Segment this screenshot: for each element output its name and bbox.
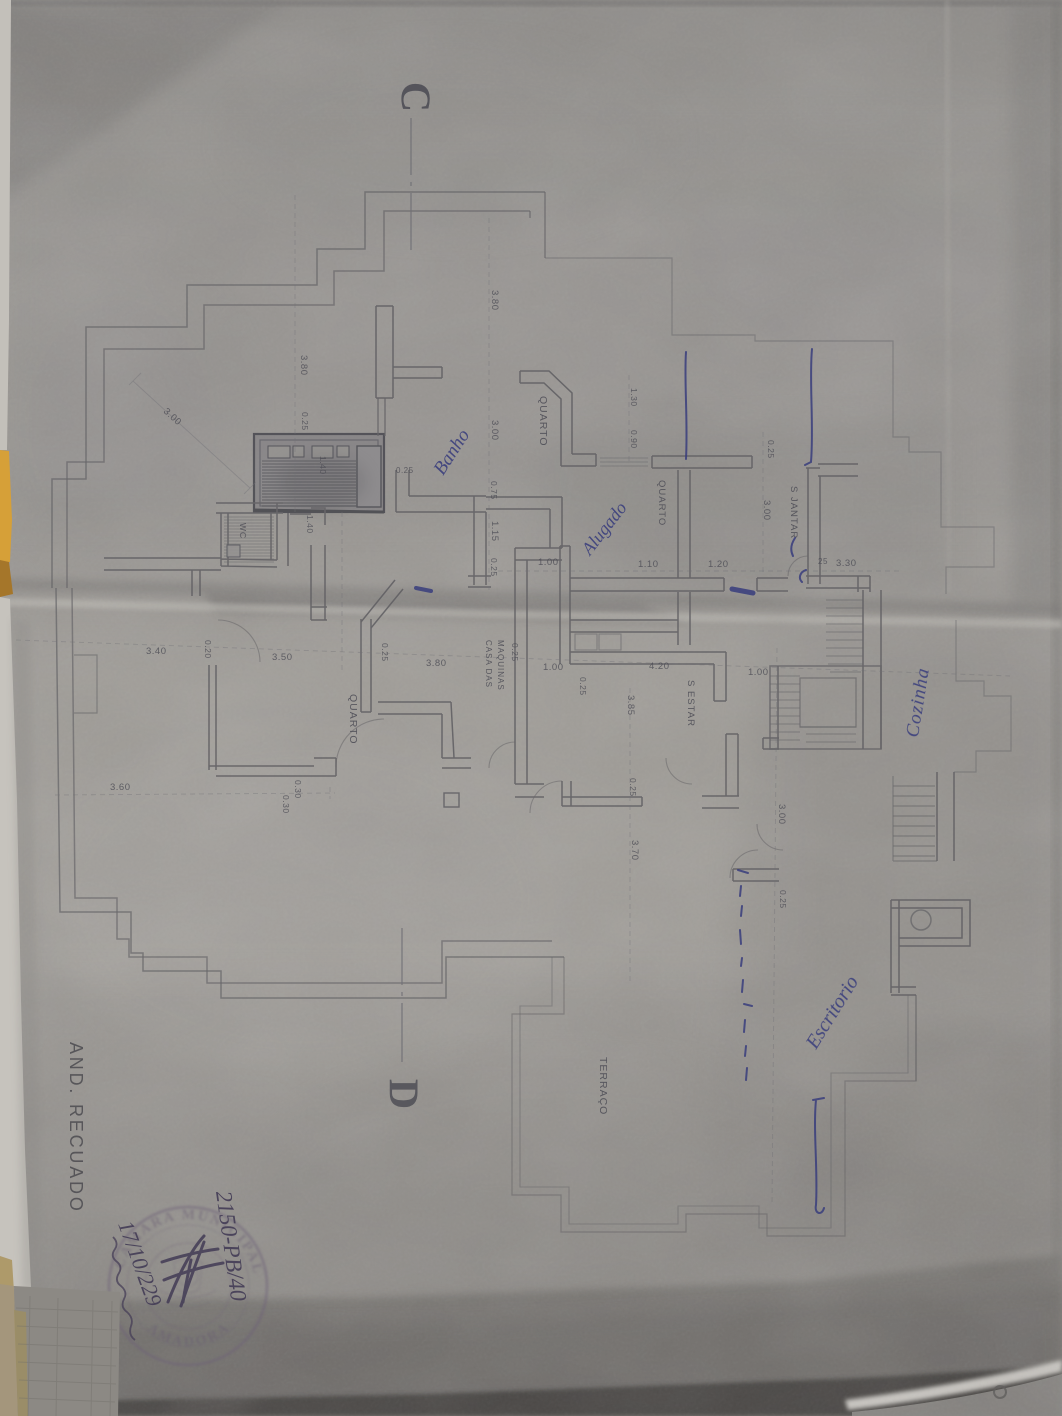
svg-text:0.25: 0.25 bbox=[510, 643, 520, 662]
svg-text:3.60: 3.60 bbox=[110, 782, 131, 793]
svg-text:QUARTO: QUARTO bbox=[537, 396, 549, 447]
svg-text:0.30: 0.30 bbox=[293, 780, 303, 799]
svg-text:QUARTO: QUARTO bbox=[656, 480, 667, 526]
svg-text:0.20: 0.20 bbox=[203, 640, 213, 659]
svg-text:QUARTO: QUARTO bbox=[347, 694, 359, 745]
svg-text:1.00: 1.00 bbox=[748, 667, 769, 678]
svg-text:0.30: 0.30 bbox=[281, 795, 291, 814]
svg-text:MAQUINAS: MAQUINAS bbox=[496, 640, 505, 691]
svg-text:3.00: 3.00 bbox=[761, 500, 772, 521]
svg-text:1.10: 1.10 bbox=[638, 559, 659, 570]
svg-text:C: C bbox=[391, 82, 437, 112]
svg-text:1.30: 1.30 bbox=[629, 388, 639, 407]
svg-text:1.00: 1.00 bbox=[538, 557, 559, 568]
svg-text:1.15: 1.15 bbox=[489, 521, 500, 542]
svg-text:3.50: 3.50 bbox=[272, 652, 293, 663]
svg-text:S ESTAR: S ESTAR bbox=[685, 680, 696, 727]
svg-text:4.20: 4.20 bbox=[649, 661, 670, 672]
svg-text:CASA DAS: CASA DAS bbox=[484, 640, 493, 688]
svg-text:D: D bbox=[379, 1079, 425, 1109]
svg-text:3.00: 3.00 bbox=[776, 804, 787, 825]
svg-text:3.80: 3.80 bbox=[298, 355, 309, 376]
svg-text:3.85: 3.85 bbox=[625, 695, 636, 716]
svg-text:0.25: 0.25 bbox=[578, 677, 588, 696]
svg-text:1.20: 1.20 bbox=[708, 559, 729, 570]
svg-text:3.40: 3.40 bbox=[146, 646, 167, 657]
svg-text:TERRAÇO: TERRAÇO bbox=[597, 1057, 609, 1115]
svg-text:1.40: 1.40 bbox=[318, 456, 328, 475]
svg-text:25: 25 bbox=[818, 557, 828, 566]
svg-text:3.30: 3.30 bbox=[836, 558, 857, 569]
svg-text:0.25: 0.25 bbox=[628, 778, 638, 797]
svg-text:0.25: 0.25 bbox=[766, 440, 776, 459]
svg-text:0.25: 0.25 bbox=[300, 412, 310, 431]
svg-text:S JANTAR: S JANTAR bbox=[788, 486, 799, 539]
svg-text:0.25: 0.25 bbox=[489, 558, 499, 577]
svg-text:0.25: 0.25 bbox=[396, 466, 414, 475]
svg-text:3.70: 3.70 bbox=[629, 840, 640, 861]
svg-text:3.80: 3.80 bbox=[426, 658, 447, 669]
svg-text:0.75: 0.75 bbox=[489, 481, 499, 500]
svg-text:3.80: 3.80 bbox=[489, 290, 500, 311]
svg-text:0.25: 0.25 bbox=[778, 890, 788, 909]
svg-text:0.90: 0.90 bbox=[629, 430, 639, 449]
svg-text:0.25: 0.25 bbox=[380, 643, 390, 662]
svg-text:3.00: 3.00 bbox=[489, 420, 500, 441]
svg-text:AND. RECUADO: AND. RECUADO bbox=[66, 1042, 86, 1214]
svg-text:WC: WC bbox=[238, 523, 248, 539]
svg-text:1.00: 1.00 bbox=[543, 662, 564, 673]
svg-text:1.40: 1.40 bbox=[305, 515, 315, 534]
